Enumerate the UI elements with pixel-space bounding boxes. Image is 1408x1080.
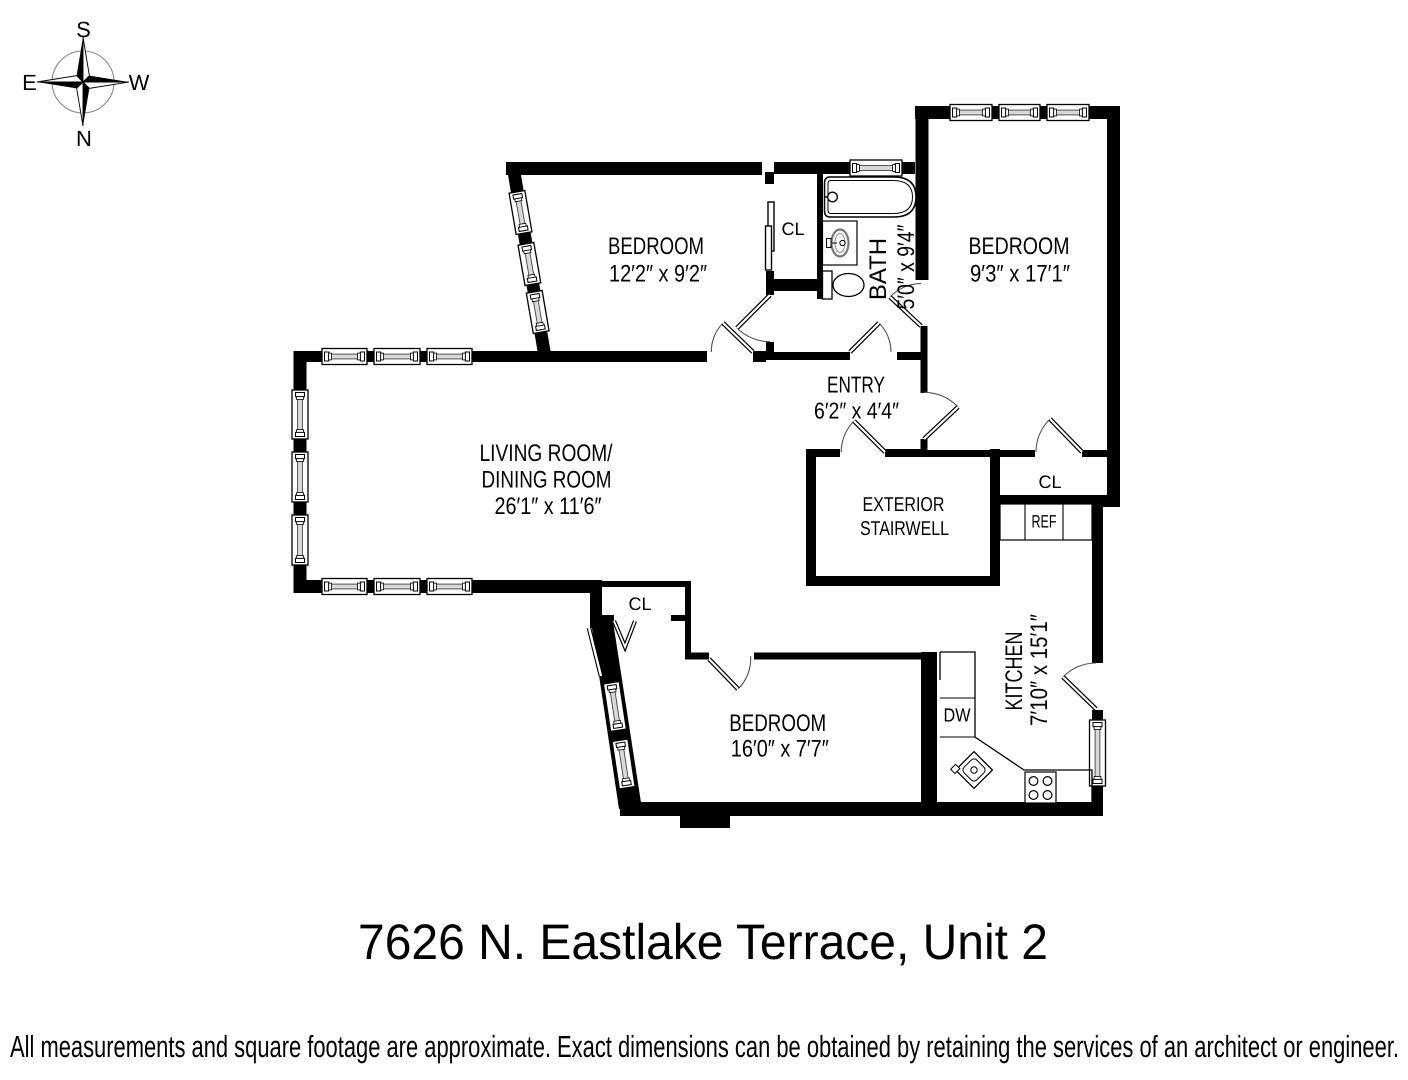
svg-text:BEDROOM: BEDROOM: [969, 233, 1070, 260]
svg-text:CL: CL: [628, 594, 651, 614]
svg-text:6′2″ x 4′4″: 6′2″ x 4′4″: [814, 398, 899, 424]
svg-text:16′0″ x 7′7″: 16′0″ x 7′7″: [731, 736, 829, 763]
svg-text:CL: CL: [781, 219, 804, 239]
svg-text:N: N: [76, 126, 92, 151]
svg-text:7′10″ x 15′1″: 7′10″ x 15′1″: [1026, 614, 1053, 726]
svg-text:BEDROOM: BEDROOM: [729, 710, 826, 737]
svg-text:BATH: BATH: [865, 238, 892, 300]
svg-text:EXTERIOR: EXTERIOR: [863, 494, 945, 516]
svg-text:12′2″ x 9′2″: 12′2″ x 9′2″: [609, 261, 707, 288]
svg-text:STAIRWELL: STAIRWELL: [860, 518, 949, 540]
svg-text:7626 N. Eastlake Terrace, Unit: 7626 N. Eastlake Terrace, Unit 2: [358, 914, 1048, 970]
svg-text:BEDROOM: BEDROOM: [608, 233, 704, 260]
svg-text:REF: REF: [1032, 512, 1057, 532]
svg-text:DW: DW: [944, 706, 971, 727]
svg-text:ENTRY: ENTRY: [827, 372, 885, 398]
svg-text:LIVING ROOM/: LIVING ROOM/: [480, 440, 613, 467]
svg-text:S: S: [76, 17, 91, 42]
svg-text:9′3″ x 17′1″: 9′3″ x 17′1″: [970, 261, 1070, 288]
svg-text:KITCHEN: KITCHEN: [1001, 632, 1028, 711]
svg-text:26′1″ x 11′6″: 26′1″ x 11′6″: [495, 493, 602, 520]
svg-text:All measurements and square fo: All measurements and square footage are …: [10, 1030, 1399, 1064]
svg-text:W: W: [129, 70, 150, 95]
svg-text:CL: CL: [1038, 472, 1061, 492]
svg-text:E: E: [22, 70, 37, 95]
svg-text:5′0″ x 9′4″: 5′0″ x 9′4″: [893, 224, 920, 309]
svg-text:DINING ROOM: DINING ROOM: [482, 467, 612, 494]
